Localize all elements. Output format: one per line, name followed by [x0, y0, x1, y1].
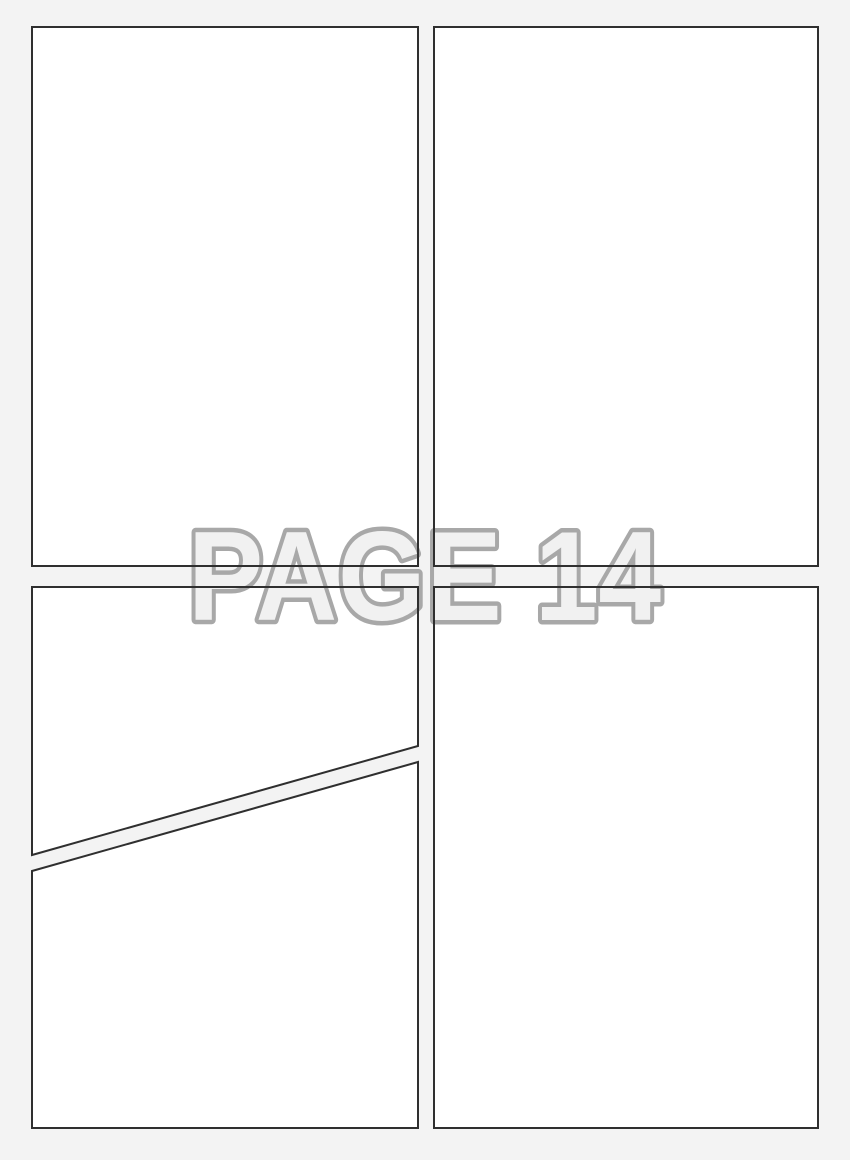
comic-page-template: PAGE 14 [0, 0, 850, 1160]
panel-top-left [32, 27, 418, 566]
panel-bottom-right [434, 587, 818, 1128]
panel-top-right [434, 27, 818, 566]
page-canvas: PAGE 14 [0, 0, 850, 1160]
page-number-watermark: PAGE 14 [188, 505, 662, 647]
